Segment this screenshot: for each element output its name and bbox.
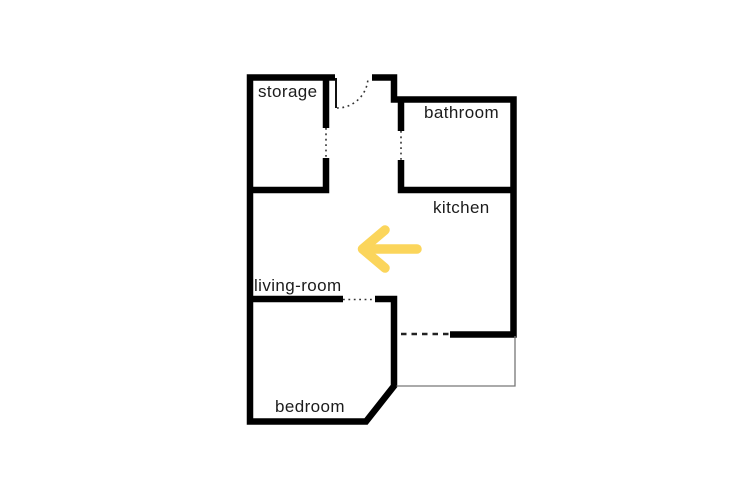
floor-plan-drawing (0, 0, 750, 500)
room-label-bedroom: bedroom (275, 397, 345, 417)
balcony-outline-path (397, 336, 516, 386)
floor-plan-canvas: storage bathroom kitchen living-room bed… (0, 0, 750, 500)
room-label-living-room: living-room (254, 276, 342, 296)
bathroom-left-wall-lower-and-bottom (401, 160, 513, 190)
room-label-storage: storage (258, 82, 318, 102)
room-label-kitchen: kitchen (433, 198, 490, 218)
left-arrow-icon (363, 230, 418, 268)
room-label-bathroom: bathroom (424, 103, 499, 123)
storage-right-wall-lower-and-bottom (247, 158, 326, 190)
balcony-outline (397, 336, 516, 386)
door-openings (326, 78, 401, 300)
entrance-door-swing-arc (337, 78, 368, 109)
